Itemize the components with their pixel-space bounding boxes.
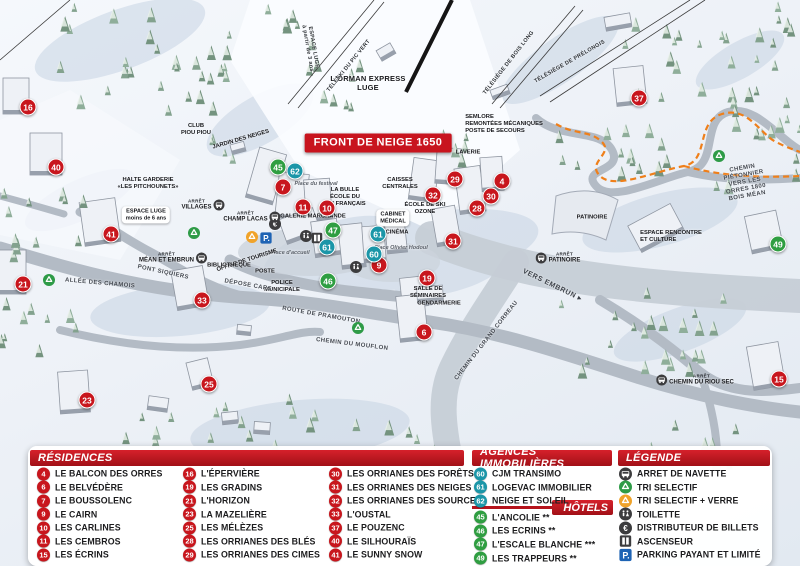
legend-item-label: TRI SELECTIF (637, 482, 697, 492)
bus-stop-text: ARRÊTVILLAGES (181, 199, 211, 210)
parking-map-icon (260, 232, 272, 244)
legend-item-label: DISTRIBUTEUR DE BILLETS (637, 523, 759, 533)
parking-icon (260, 232, 272, 244)
residence-item-32: 32LES ORRIANES DES SOURCES (329, 494, 482, 507)
list-badge: 6 (37, 481, 50, 494)
marker-residence-30[interactable]: 30 (483, 188, 500, 205)
recycle-green-icon (188, 227, 200, 239)
marker-residence-19[interactable]: 19 (419, 270, 436, 287)
bus-stop-patinoire: ARRÊTPATINOIRE (536, 252, 581, 263)
list-item-label: LES ORRIANES DES FORÊTS (347, 469, 474, 479)
resort-map-canvas: FRONT DE NEIGE 1650L'ORMAN EXPRESS LUGEE… (0, 0, 800, 566)
residence-item-4: 4LE BALCON DES ORRES (37, 467, 162, 480)
marker-residence-21[interactable]: 21 (15, 276, 32, 293)
list-item-label: LES ORRIANES DES BLÉS (201, 536, 316, 546)
marker-residence-40[interactable]: 40 (48, 159, 65, 176)
marker-residence-10[interactable]: 10 (319, 200, 336, 217)
residence-item-6: 6LE BELVÉDÈRE (37, 481, 123, 494)
list-badge: 29 (183, 548, 196, 561)
hotel-item-45: 45L'ANCOLIE ** (474, 511, 550, 524)
legend-item-label: ASCENSEUR (637, 536, 693, 546)
agency-item-60: 60CJM TRANSIMO (474, 467, 561, 480)
marker-residence-29[interactable]: 29 (447, 171, 464, 188)
recycle-green-icon (352, 322, 364, 334)
toilet-map-icon (350, 261, 362, 273)
marker-hotel-45[interactable]: 45 (270, 159, 287, 176)
marker-agency-61[interactable]: 61 (319, 239, 336, 256)
list-badge: 9 (37, 508, 50, 521)
list-item-label: LES ECRINS ** (492, 526, 555, 536)
recycle-orange-icon (619, 494, 632, 507)
residence-item-37: 37LE POUZENC (329, 521, 405, 534)
bus-stop-text: ARRÊTPATINOIRE (549, 252, 581, 263)
recycle-green-map-icon (352, 322, 364, 334)
residence-item-30: 30LES ORRIANES DES FORÊTS (329, 467, 474, 480)
bus-stop-villages: ARRÊTVILLAGES (181, 199, 224, 210)
residence-item-25: 25LES MÉLÈZES (183, 521, 263, 534)
list-item-label: L'HORIZON (201, 496, 250, 506)
marker-agency-61[interactable]: 61 (370, 226, 387, 243)
bus-stop-name: VILLAGES (181, 204, 211, 210)
marker-residence-4[interactable]: 4 (494, 173, 511, 190)
list-badge: 15 (37, 548, 50, 561)
list-item-label: L'ESCALE BLANCHE *** (492, 539, 595, 549)
marker-residence-25[interactable]: 25 (201, 376, 218, 393)
recycle-green-map-icon (713, 150, 725, 162)
recycle-orange-icon (246, 231, 258, 243)
bus-icon (214, 199, 225, 210)
marker-residence-11[interactable]: 11 (295, 199, 312, 216)
marker-residence-33[interactable]: 33 (194, 292, 211, 309)
residence-item-11: 11LES CEMBROS (37, 535, 121, 548)
list-badge: 40 (329, 535, 342, 548)
list-badge: 37 (329, 521, 342, 534)
list-item-label: L'ANCOLIE ** (492, 512, 550, 522)
bus-icon (619, 467, 632, 480)
list-item-label: LE BELVÉDÈRE (55, 482, 123, 492)
list-item-label: LES ORRIANES DES SOURCES (347, 496, 482, 506)
legend-item-label: TRI SELECTIF + VERRE (637, 496, 738, 506)
list-badge: 45 (474, 511, 487, 524)
marker-residence-6[interactable]: 6 (416, 324, 433, 341)
marker-hotel-47[interactable]: 47 (325, 222, 342, 239)
legend-item-toilet: TOILETTE (619, 508, 680, 521)
parking-icon (619, 548, 632, 561)
legend-header: LÉGENDE (618, 450, 770, 466)
marker-agency-60[interactable]: 60 (366, 246, 383, 263)
bus-stop-name: MÉAN ET EMBRUN (139, 257, 194, 263)
list-badge: 25 (183, 521, 196, 534)
agencies-header: AGENCES IMMOBILIÈRES (472, 450, 612, 466)
list-badge: 47 (474, 538, 487, 551)
recycle-green-map-icon (43, 274, 55, 286)
recycle-green-icon (713, 150, 725, 162)
marker-residence-15[interactable]: 15 (771, 371, 788, 388)
list-badge: 7 (37, 494, 50, 507)
list-item-label: LES ORRIANES DES CIMES (201, 550, 320, 560)
list-item-label: CJM TRANSIMO (492, 469, 561, 479)
residence-item-33: 33L'OUSTAL (329, 508, 391, 521)
list-badge: 49 (474, 552, 487, 565)
list-badge: 62 (474, 494, 487, 507)
bus-stop-chemin-du-riou-sec: ARRÊTCHEMIN DU RIOU SEC (656, 374, 734, 385)
residence-item-16: 16L'ÉPERVIÈRE (183, 467, 260, 480)
bus-stop-champ-lacas: ARRÊTCHAMP LACAS (223, 211, 280, 222)
list-item-label: LES CARLINES (55, 523, 121, 533)
toilet-icon (619, 508, 632, 521)
elevator-icon (619, 535, 632, 548)
residence-item-19: 19LES GRADINS (183, 481, 262, 494)
list-item-label: LE CAIRN (55, 509, 97, 519)
legend-panel: RÉSIDENCES AGENCES IMMOBILIÈRES LÉGENDE … (28, 446, 772, 566)
agency-item-61: 61LOGEVAC IMMOBILIER (474, 481, 592, 494)
bus-stop-text: ARRÊTCHAMP LACAS (223, 211, 267, 222)
list-badge: 31 (329, 481, 342, 494)
bus-stop-text: ARRÊTMÉAN ET EMBRUN (139, 252, 194, 263)
legend-item-label: PARKING PAYANT ET LIMITÉ (637, 550, 761, 560)
recycle-green-icon (619, 481, 632, 494)
residence-item-29: 29LES ORRIANES DES CIMES (183, 548, 320, 561)
hotel-item-49: 49LES TRAPPEURS ** (474, 552, 577, 565)
marker-residence-7[interactable]: 7 (275, 179, 292, 196)
bus-icon (536, 252, 547, 263)
list-item-label: LES GRADINS (201, 482, 262, 492)
agency-item-62: 62NEIGE ET SOLEIL (474, 494, 569, 507)
list-item-label: LES CEMBROS (55, 536, 121, 546)
legend-item-recycle-orange: TRI SELECTIF + VERRE (619, 494, 738, 507)
recycle-green-icon (43, 274, 55, 286)
list-badge: 4 (37, 467, 50, 480)
marker-residence-23[interactable]: 23 (79, 392, 96, 409)
residence-item-23: 23LA MAZELIÈRE (183, 508, 267, 521)
hotel-item-46: 46LES ECRINS ** (474, 524, 555, 537)
list-badge: 16 (183, 467, 196, 480)
marker-residence-28[interactable]: 28 (469, 200, 486, 217)
residence-item-41: 41LE SUNNY SNOW (329, 548, 422, 561)
legend-item-label: TOILETTE (637, 509, 680, 519)
list-badge: 21 (183, 494, 196, 507)
marker-residence-16[interactable]: 16 (20, 99, 37, 116)
list-item-label: LES TRAPPEURS ** (492, 553, 577, 563)
toilet-icon (350, 261, 362, 273)
bus-icon (270, 211, 281, 222)
bus-stop-name: CHEMIN DU RIOU SEC (669, 379, 734, 385)
marker-residence-32[interactable]: 32 (425, 187, 442, 204)
marker-residence-31[interactable]: 31 (445, 233, 462, 250)
legend-item-euro: DISTRIBUTEUR DE BILLETS (619, 521, 759, 534)
list-item-label: L'ÉPERVIÈRE (201, 469, 260, 479)
legend-item-bus: ARRET DE NAVETTE (619, 467, 726, 480)
list-badge: 19 (183, 481, 196, 494)
residence-item-15: 15LES ÉCRINS (37, 548, 109, 561)
bus-stop-m-an-et-embrun: ARRÊTMÉAN ET EMBRUN (139, 252, 207, 263)
recycle-green-map-icon (188, 227, 200, 239)
marker-hotel-46[interactable]: 46 (320, 273, 337, 290)
marker-residence-37[interactable]: 37 (631, 90, 648, 107)
list-badge: 60 (474, 467, 487, 480)
list-item-label: L'OUSTAL (347, 509, 391, 519)
list-item-label: LE POUZENC (347, 523, 405, 533)
list-item-label: LE SILHOURAÏS (347, 536, 416, 546)
legend-item-label: ARRET DE NAVETTE (637, 469, 726, 479)
list-item-label: LA MAZELIÈRE (201, 509, 267, 519)
marker-agency-62[interactable]: 62 (287, 163, 304, 180)
residence-item-28: 28LES ORRIANES DES BLÉS (183, 535, 316, 548)
euro-icon (619, 521, 632, 534)
list-item-label: LE SUNNY SNOW (347, 550, 422, 560)
list-badge: 61 (474, 481, 487, 494)
bus-stop-name: CHAMP LACAS (223, 216, 267, 222)
recycle-orange-map-icon (246, 231, 258, 243)
list-badge: 46 (474, 524, 487, 537)
list-item-label: LES ORRIANES DES NEIGES (347, 482, 472, 492)
list-item-label: LES MÉLÈZES (201, 523, 263, 533)
marker-residence-41[interactable]: 41 (103, 226, 120, 243)
legend-item-elevator: ASCENSEUR (619, 535, 693, 548)
bus-icon (656, 374, 667, 385)
list-item-label: LES ÉCRINS (55, 550, 109, 560)
list-badge: 33 (329, 508, 342, 521)
list-badge: 23 (183, 508, 196, 521)
list-badge: 41 (329, 548, 342, 561)
list-item-label: LOGEVAC IMMOBILIER (492, 482, 592, 492)
residence-item-21: 21L'HORIZON (183, 494, 250, 507)
residence-item-40: 40LE SILHOURAÏS (329, 535, 416, 548)
residence-item-7: 7LE BOUSSOLENC (37, 494, 132, 507)
bus-icon (196, 252, 207, 263)
residence-item-9: 9LE CAIRN (37, 508, 97, 521)
list-item-label: LE BALCON DES ORRES (55, 469, 162, 479)
list-badge: 10 (37, 521, 50, 534)
residence-item-31: 31LES ORRIANES DES NEIGES (329, 481, 472, 494)
bus-stop-text: ARRÊTCHEMIN DU RIOU SEC (669, 374, 734, 385)
legend-item-parking: PARKING PAYANT ET LIMITÉ (619, 548, 761, 561)
marker-hotel-49[interactable]: 49 (770, 236, 787, 253)
list-badge: 30 (329, 467, 342, 480)
residence-item-10: 10LES CARLINES (37, 521, 121, 534)
list-badge: 32 (329, 494, 342, 507)
hotel-item-47: 47L'ESCALE BLANCHE *** (474, 538, 595, 551)
residences-header: RÉSIDENCES (30, 450, 464, 466)
list-badge: 11 (37, 535, 50, 548)
bus-stop-name: PATINOIRE (549, 257, 581, 263)
list-item-label: NEIGE ET SOLEIL (492, 496, 569, 506)
list-item-label: LE BOUSSOLENC (55, 496, 132, 506)
legend-item-recycle-green: TRI SELECTIF (619, 481, 697, 494)
list-badge: 28 (183, 535, 196, 548)
